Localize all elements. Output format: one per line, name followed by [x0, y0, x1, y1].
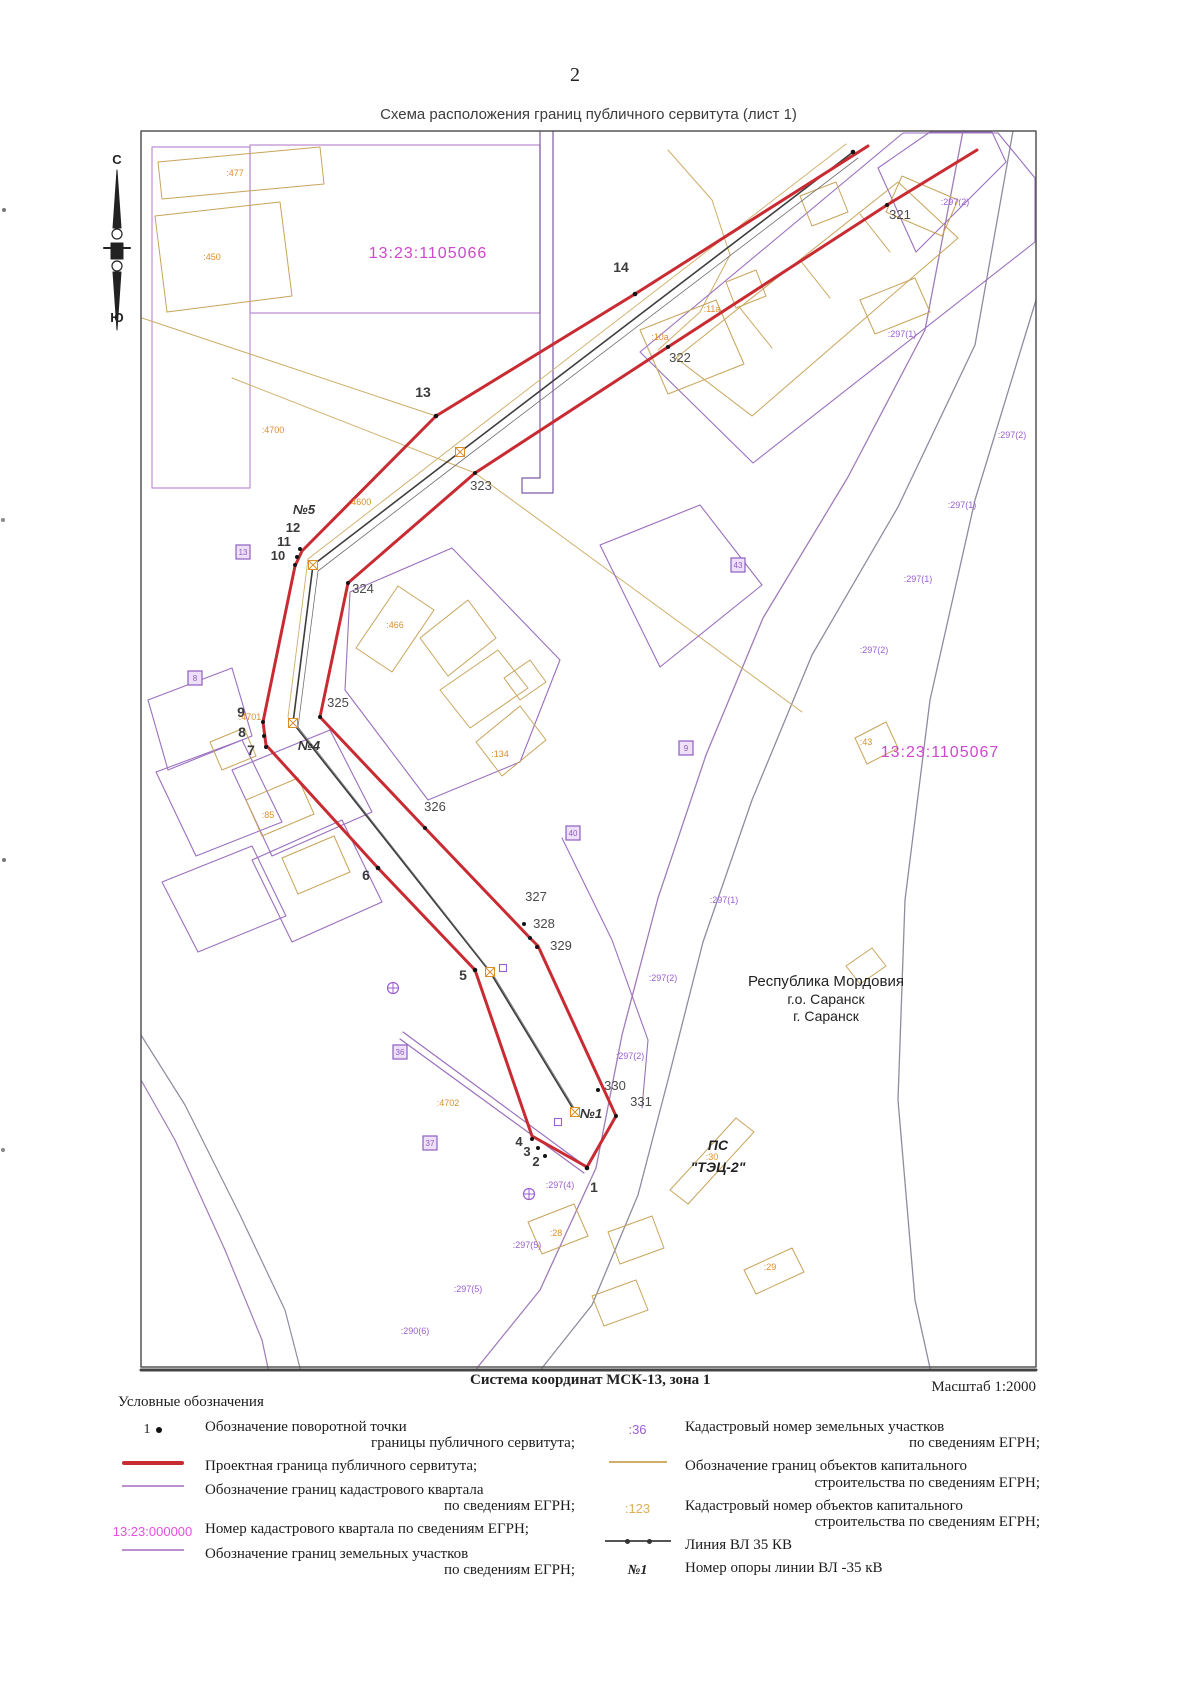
turn-point — [543, 1154, 547, 1158]
power-pole-icon — [571, 1108, 580, 1117]
purple-line-swatch-icon — [122, 1485, 184, 1487]
building — [440, 650, 528, 728]
parcel — [345, 548, 560, 800]
building — [155, 202, 292, 312]
boundary-point-label: 325 — [327, 695, 349, 710]
power-pole-icon — [309, 561, 318, 570]
boundary-point-label: 322 — [669, 350, 691, 365]
tan-line-swatch-icon — [609, 1461, 667, 1463]
object-number-label: :4702 — [437, 1098, 460, 1108]
object-number-label: :4701 — [239, 712, 262, 722]
compass-north-label: С — [112, 152, 122, 167]
parcel — [640, 133, 1035, 463]
purple-line-swatch-icon — [122, 1549, 184, 1551]
quarter-1105066-parcel — [250, 145, 540, 313]
object-number-label: :85 — [262, 810, 275, 820]
boundary-point — [473, 471, 477, 475]
parcel-number-label: :297(1) — [948, 500, 977, 510]
turn-point — [536, 1146, 540, 1150]
legend-item-text: Обозначение поворотной точки границы пуб… — [205, 1419, 575, 1451]
servitude-boundary-left — [263, 146, 868, 1167]
turn-point-label: 10 — [271, 548, 285, 563]
road-line — [141, 1035, 300, 1368]
object-number-label: :43 — [860, 737, 873, 747]
svg-text:13: 13 — [239, 548, 248, 557]
object-number-label: :10а — [651, 332, 669, 342]
turn-point — [293, 563, 297, 567]
svg-text:9: 9 — [684, 744, 689, 753]
capital-object-line — [142, 318, 436, 416]
legend: Условные обозначения 1 Обозначение повор… — [100, 1394, 1060, 1586]
parcel-number-label: :297(2) — [941, 197, 970, 207]
legend-left-column: 1 Обозначение поворотной точки границы п… — [100, 1419, 590, 1586]
pole-number-sample: №1 — [628, 1563, 648, 1579]
turn-point-label: 2 — [532, 1154, 539, 1169]
parcel-number-label: :297(2) — [998, 430, 1027, 440]
object-number-label: :11а — [704, 304, 721, 314]
turn-point-label: 14 — [613, 259, 629, 275]
parcel-number-label: :297(4) — [546, 1180, 575, 1190]
turn-point — [473, 968, 478, 973]
geodetic-point-icon — [524, 1189, 535, 1200]
building — [420, 600, 496, 676]
boundary-point — [535, 945, 539, 949]
object-number-label: :4600 — [349, 497, 372, 507]
boundary-point — [346, 581, 350, 585]
legend-item-servitude-boundary: Проектная граница публичного сервитута; — [100, 1458, 590, 1474]
location-label: г.о. Саранск — [787, 991, 865, 1007]
building-line — [740, 308, 772, 348]
boxed-parcel-number: 37 — [423, 1136, 437, 1150]
legend-item-turn-point: 1 Обозначение поворотной точки границы п… — [100, 1419, 590, 1451]
boxed-parcel-number: 43 — [731, 558, 745, 572]
turn-point-label: 1 — [590, 1179, 598, 1195]
map-title: Схема расположения границ публичного сер… — [141, 106, 1036, 123]
boundary-point — [596, 1088, 600, 1092]
scan-mark — [1, 1148, 5, 1152]
boundary-point — [528, 936, 532, 940]
parcel-number-label: :297(2) — [860, 645, 889, 655]
quarter-number-label: 13:23:1105067 — [881, 744, 1000, 761]
turn-point — [264, 745, 268, 749]
building-line — [800, 260, 830, 298]
legend-item-parcel-boundary: Обозначение границ земельных участков по… — [100, 1546, 590, 1578]
scan-mark — [1, 518, 5, 522]
power-pole-icon — [456, 448, 465, 457]
turn-point — [434, 414, 439, 419]
building — [800, 182, 848, 226]
power-line-swatch-icon — [605, 1540, 671, 1542]
turn-point-label: 12 — [286, 520, 300, 535]
boundary-point-label: 329 — [550, 938, 572, 953]
scan-mark — [2, 858, 6, 862]
road-line — [898, 300, 1036, 1368]
boundary-point — [614, 1114, 618, 1118]
turn-point-label: 6 — [362, 867, 370, 883]
turn-point-dot-icon — [156, 1427, 162, 1433]
capital-object-line — [232, 378, 802, 712]
parcel-number-sample: :36 — [628, 1422, 646, 1437]
legend-item-quarter-number: 13:23:000000 Номер кадастрового квартала… — [100, 1521, 590, 1539]
boundary-point-label: 323 — [470, 478, 492, 493]
turn-point — [633, 292, 638, 297]
capital-object-line — [658, 150, 730, 350]
boundary-point-label: 331 — [630, 1094, 652, 1109]
legend-right-column: :36 Кадастровый номер земельных участков… — [590, 1419, 1050, 1586]
parcel — [600, 505, 762, 667]
turn-point — [376, 866, 381, 871]
turn-point-label: 8 — [238, 724, 246, 740]
boundary-point-label: 327 — [525, 889, 547, 904]
turn-point-label: 7 — [247, 742, 255, 758]
object-number-label: :134 — [491, 749, 509, 759]
building — [592, 1280, 648, 1326]
turn-point-symbol: 1 — [100, 1419, 205, 1438]
quarter-number-label: 13:23:1105066 — [369, 245, 488, 262]
turn-point-label: 11 — [277, 534, 291, 549]
parcel-number-label: :297(5) — [454, 1284, 483, 1294]
parcel-number-label: :297(1) — [904, 574, 933, 584]
object-number-label: :450 — [203, 252, 221, 262]
object-number-label: :466 — [386, 620, 404, 630]
coordinate-system-label: Система координат МСК-13, зона 1 — [470, 1372, 710, 1389]
servitude-boundary-right — [320, 150, 977, 1167]
boxed-parcel-number: 9 — [679, 741, 693, 755]
turn-point — [295, 555, 299, 559]
boundary-point-label: 326 — [424, 799, 446, 814]
power-line — [293, 152, 853, 1112]
turn-point-label: 3 — [523, 1144, 530, 1159]
boundary-point-label: 330 — [604, 1078, 626, 1093]
parcel-number-label: :297(1) — [888, 329, 917, 339]
quarter-boundary — [522, 478, 553, 493]
legend-item-capital-object-boundary: Обозначение границ объектов капитального… — [590, 1458, 1050, 1490]
parcel-mark-icon — [500, 965, 507, 972]
legend-item-quarter-boundary: Обозначение границ кадастрового квартала… — [100, 1482, 590, 1514]
building — [860, 278, 930, 334]
road-line — [141, 1080, 268, 1368]
turn-point — [585, 1166, 590, 1171]
parcel-line — [562, 838, 648, 1108]
boundary-point-label: 328 — [533, 916, 555, 931]
scan-mark — [2, 208, 6, 212]
boundary-point-label: 324 — [352, 581, 374, 596]
boundary-point — [522, 922, 526, 926]
turn-point — [261, 720, 265, 724]
power-point — [851, 150, 856, 155]
pole-number-label: №5 — [293, 502, 316, 517]
power-pole-icon — [486, 968, 495, 977]
pole-number-label: №4 — [298, 738, 321, 753]
legend-item-power-line: Линия ВЛ 35 КВ — [590, 1537, 1050, 1553]
parcel-mark-icon — [555, 1119, 562, 1126]
north-arrow-icon — [112, 261, 122, 271]
power-pole-icon — [289, 719, 298, 728]
parcel-number-label: :297(2) — [649, 973, 678, 983]
svg-text:40: 40 — [569, 829, 578, 838]
turn-point-label: 4 — [515, 1134, 523, 1149]
turn-point — [530, 1137, 534, 1141]
quarter-number-sample: 13:23:000000 — [113, 1524, 193, 1539]
page-number: 2 — [475, 64, 675, 87]
location-label: Республика Мордовия — [748, 973, 904, 990]
boundary-point — [423, 826, 427, 830]
geodetic-point-icon — [388, 983, 399, 994]
boundary-point-label: 321 — [889, 207, 911, 222]
boundary-point — [318, 715, 322, 719]
parcel-number-label: :297(1) — [710, 895, 739, 905]
object-number-label: :30 — [706, 1152, 719, 1162]
boxed-parcel-number: 40 — [566, 826, 580, 840]
parcel — [878, 132, 1006, 252]
turn-point-label: 5 — [459, 967, 467, 983]
turn-point-label: 13 — [415, 384, 431, 400]
object-number-label: :477 — [226, 168, 244, 178]
parcel-number-label: :290(6) — [401, 1326, 430, 1336]
legend-item-pole-number: №1 Номер опоры линии ВЛ -35 кВ — [590, 1560, 1050, 1579]
legend-item-capital-object-number: :123 Кадастровый номер объектов капиталь… — [590, 1498, 1050, 1530]
svg-text:43: 43 — [734, 561, 743, 570]
turn-point-symbol-number: 1 — [144, 1422, 151, 1438]
boundary-point — [666, 345, 670, 349]
fence-line — [400, 1039, 584, 1173]
boxed-parcel-number: 36 — [393, 1045, 407, 1059]
legend-item-parcel-number: :36 Кадастровый номер земельных участков… — [590, 1419, 1050, 1451]
svg-text:36: 36 — [396, 1048, 405, 1057]
capital-object-number-sample: :123 — [625, 1501, 650, 1516]
building — [282, 836, 350, 894]
north-arrow-icon — [112, 229, 122, 239]
north-arrow-icon — [113, 170, 121, 228]
parcel-number-label: :297(5) — [513, 1240, 542, 1250]
object-number-label: :29 — [764, 1262, 777, 1272]
red-line-swatch-icon — [122, 1461, 184, 1465]
building — [640, 300, 744, 394]
building — [676, 182, 958, 416]
svg-text:8: 8 — [193, 674, 198, 683]
legend-heading: Условные обозначения — [118, 1394, 1060, 1411]
object-number-label: :4700 — [262, 425, 285, 435]
parcel — [162, 846, 286, 952]
boxed-parcel-number: 8 — [188, 671, 202, 685]
document-page: 1384393640371234567891011121314321322323… — [0, 0, 1200, 1697]
location-label: г. Саранск — [793, 1008, 860, 1024]
svg-text:37: 37 — [426, 1139, 435, 1148]
object-number-label: :28 — [550, 1228, 563, 1238]
parcel-number-label: :297(2) — [616, 1051, 645, 1061]
boxed-parcel-number: 13 — [236, 545, 250, 559]
building — [608, 1216, 664, 1264]
turn-point — [298, 547, 302, 551]
substation-label: ПС — [708, 1137, 729, 1153]
north-arrow-icon — [111, 243, 123, 259]
turn-point — [262, 734, 266, 738]
pole-number-label: №1 — [580, 1106, 602, 1121]
